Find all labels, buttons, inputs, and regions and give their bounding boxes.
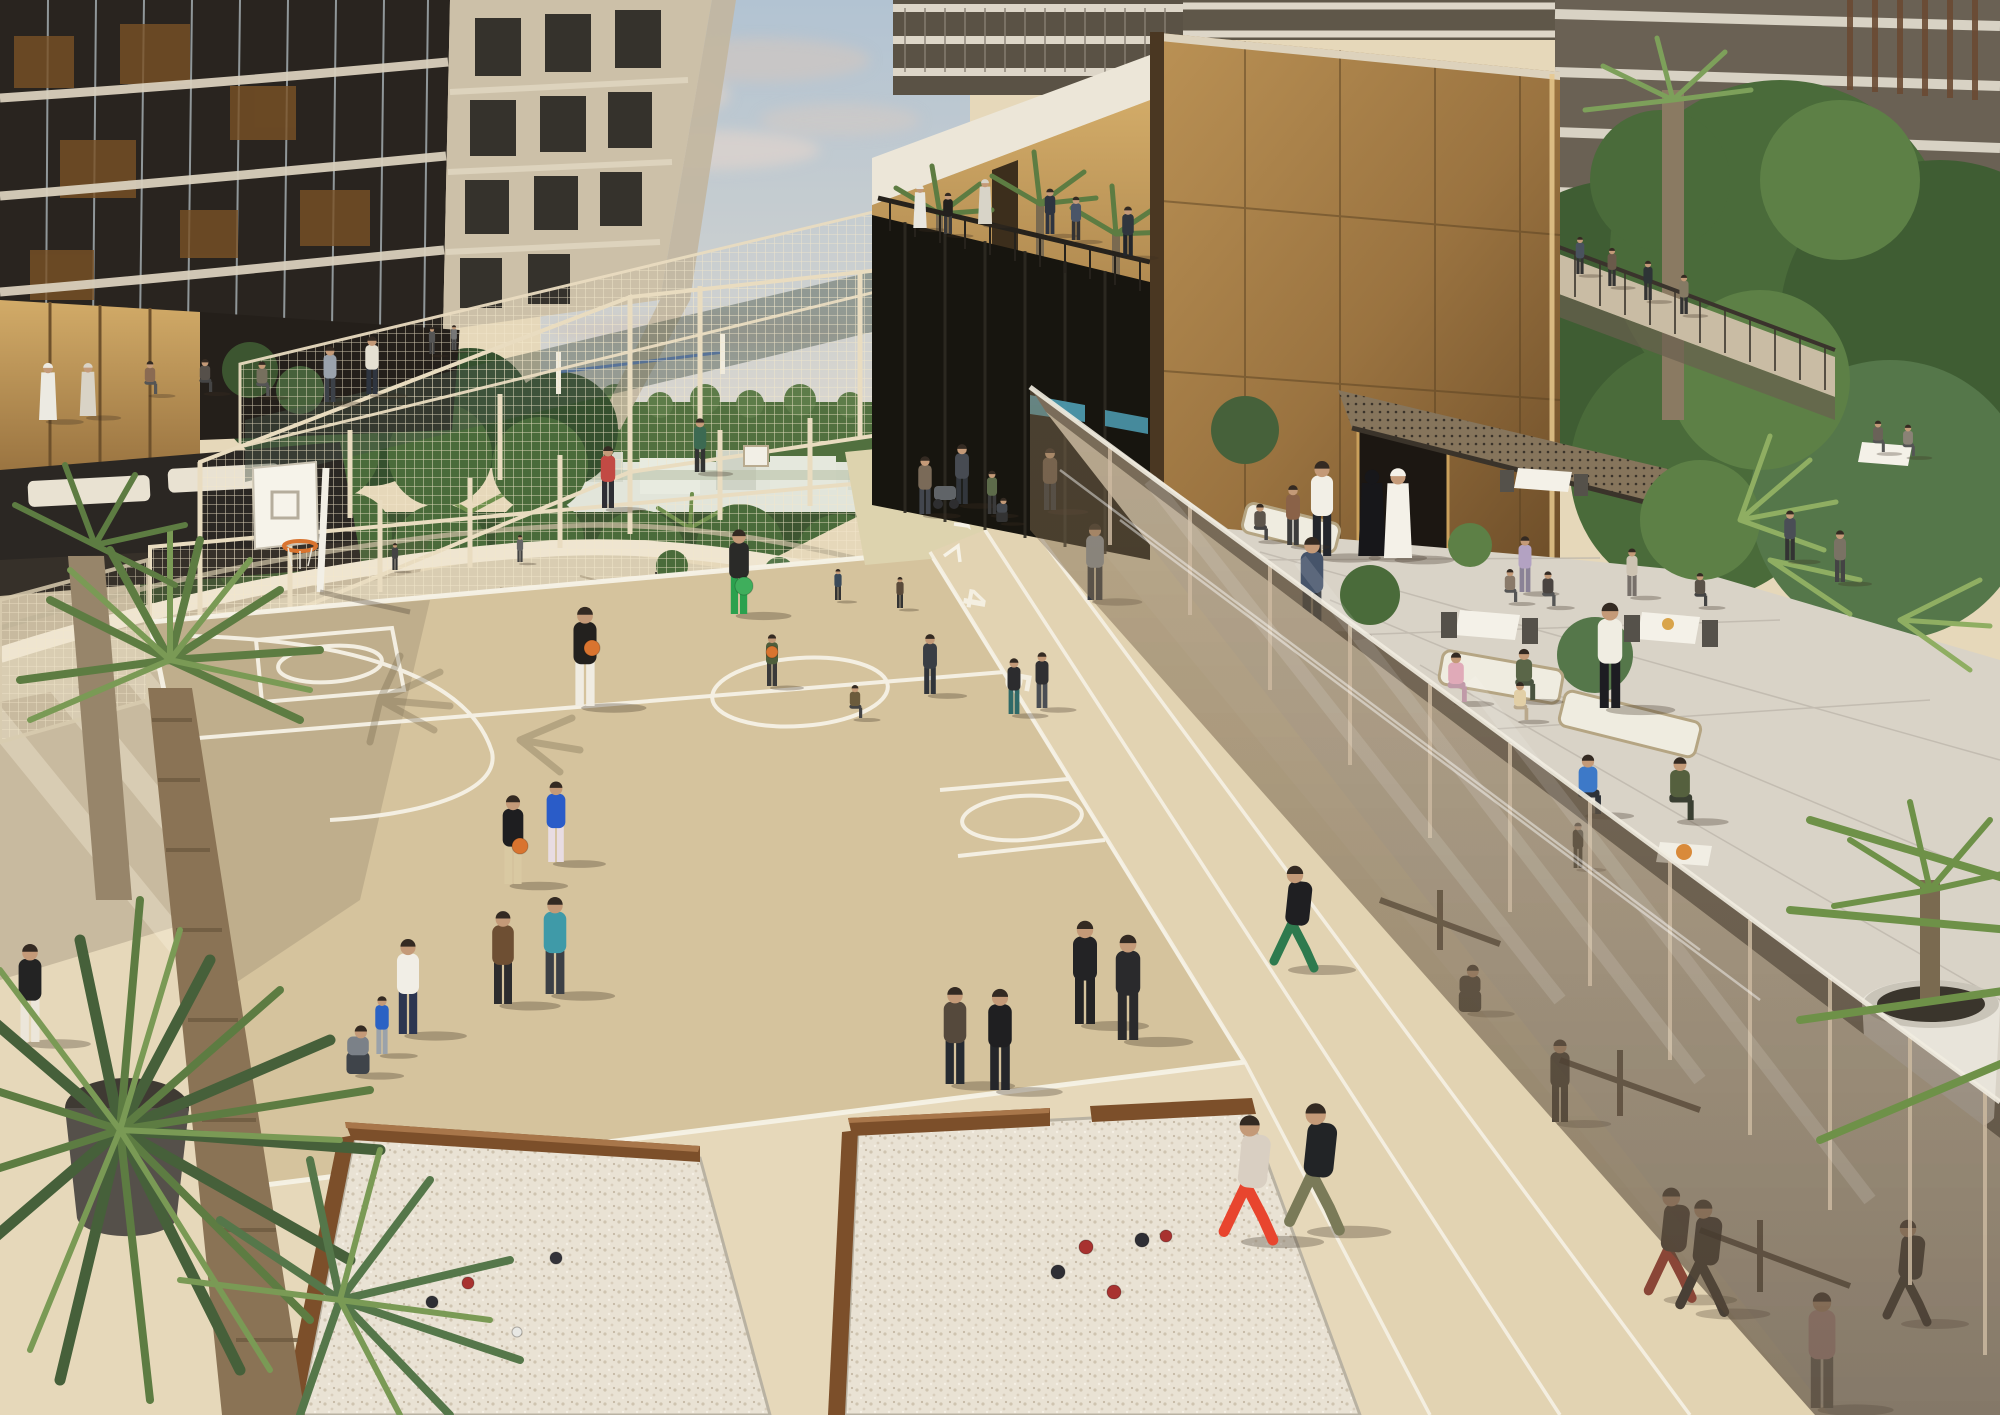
ball (766, 646, 778, 658)
boule (1135, 1233, 1149, 1247)
boule (1107, 1285, 1121, 1299)
court-sign (744, 446, 768, 466)
boule (550, 1252, 562, 1264)
ball (735, 577, 753, 595)
boule (1160, 1230, 1172, 1242)
boule (1051, 1265, 1065, 1279)
boule (462, 1277, 474, 1289)
rendering-canvas: 4 5 3 (0, 0, 2000, 1415)
ball (512, 838, 528, 854)
boule (512, 1327, 522, 1337)
boule (1079, 1240, 1093, 1254)
pit-a (282, 1122, 770, 1415)
boule (426, 1296, 438, 1308)
ball (584, 640, 600, 656)
rooftop-scene: 4 5 3 (0, 0, 2000, 1415)
